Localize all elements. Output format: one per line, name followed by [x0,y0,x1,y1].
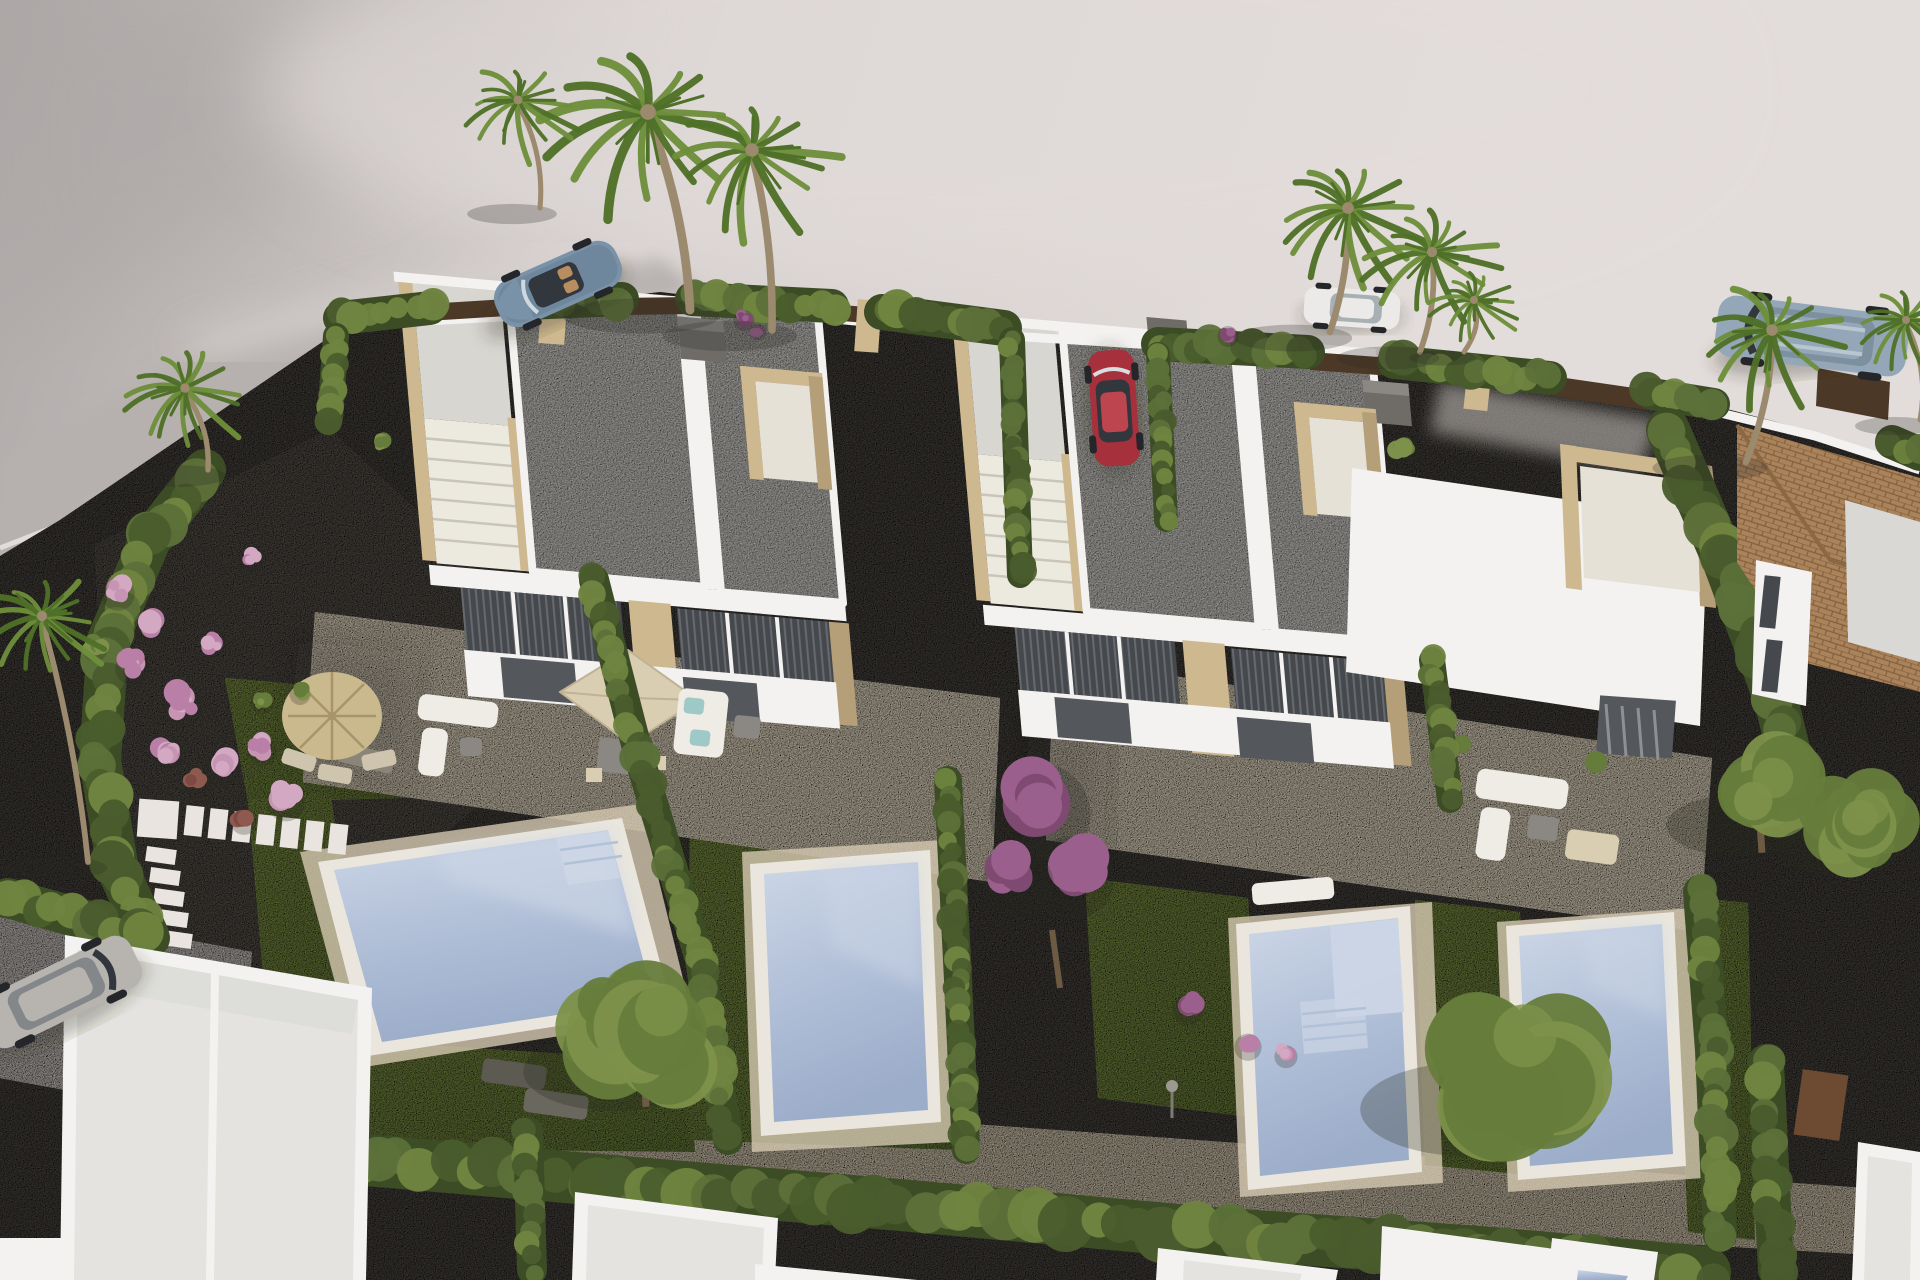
green-bush [366,432,393,459]
pink-bush [267,780,305,821]
pink-bush [115,648,149,685]
patio-door [1054,697,1131,744]
patio-door [1237,717,1314,764]
narrow-pool-left-duplex [750,850,941,1136]
pink-bush [1234,1034,1261,1061]
pink-bush [200,632,227,659]
pool-right-duplex-unit1 [1236,906,1422,1190]
green-bush [250,691,273,714]
architectural-render [0,0,1920,1280]
roof-stairs [423,410,532,572]
roof-terrace-stone [740,366,832,490]
roof-stairs [977,446,1087,612]
pink-bush [133,608,171,646]
